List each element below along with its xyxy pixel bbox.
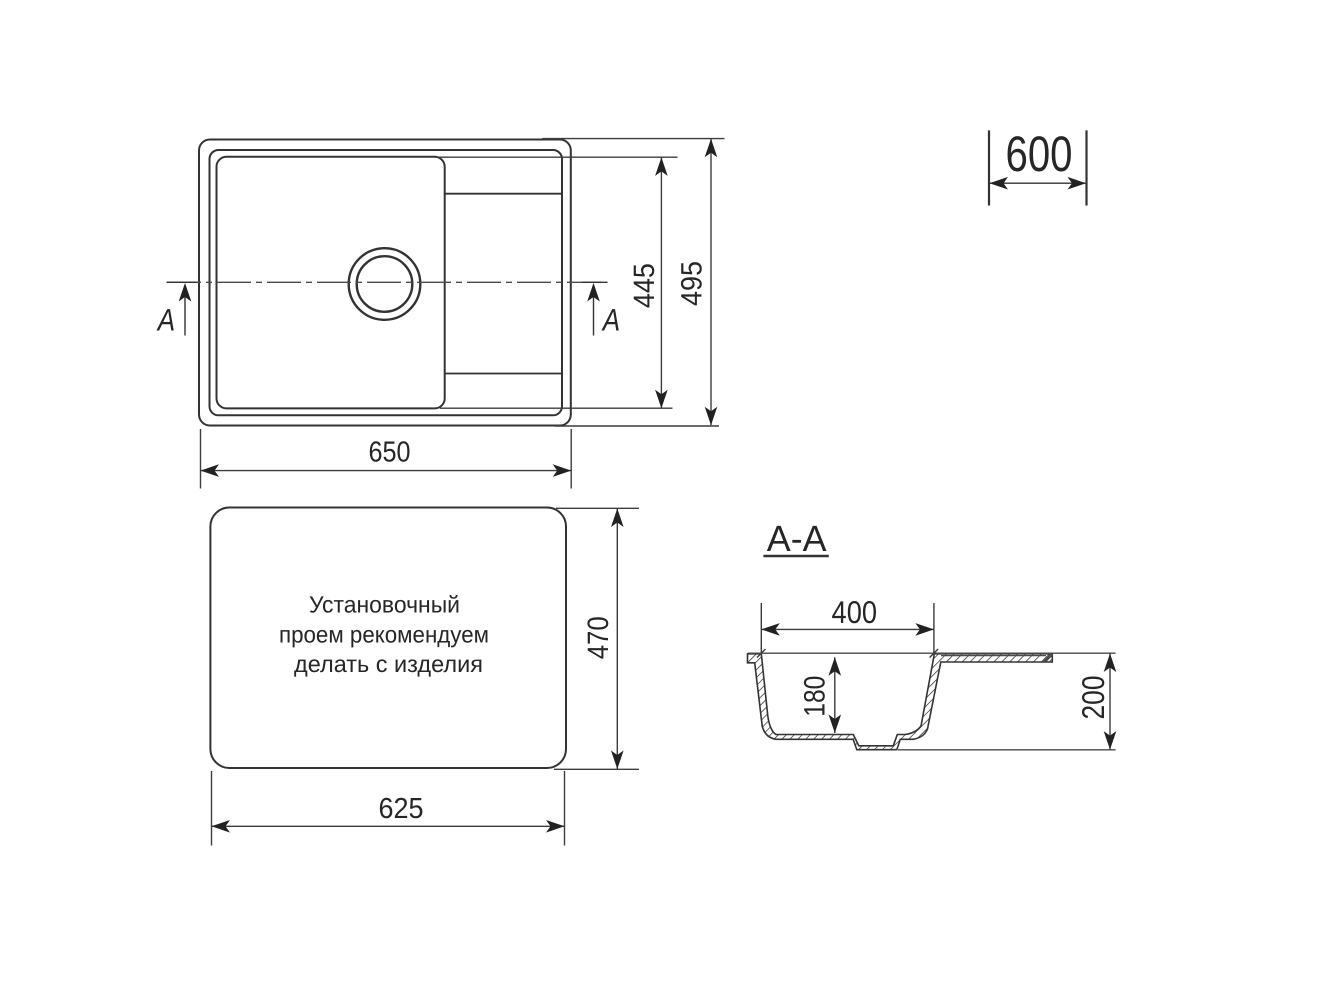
- svg-text:495: 495: [676, 261, 709, 306]
- svg-text:Установочный: Установочный: [309, 592, 460, 618]
- svg-text:200: 200: [1075, 676, 1111, 720]
- svg-text:проем рекомендуем: проем рекомендуем: [279, 621, 489, 647]
- svg-text:445: 445: [628, 263, 661, 308]
- svg-text:A: A: [156, 303, 175, 338]
- svg-text:делать с изделия: делать с изделия: [294, 651, 483, 677]
- svg-text:470: 470: [582, 616, 615, 659]
- svg-text:400: 400: [832, 594, 878, 630]
- svg-text:600: 600: [1006, 126, 1073, 182]
- svg-text:180: 180: [798, 676, 831, 717]
- svg-text:A-A: A-A: [767, 518, 827, 559]
- svg-text:625: 625: [379, 793, 424, 825]
- svg-text:A: A: [601, 303, 620, 338]
- svg-text:650: 650: [369, 437, 411, 469]
